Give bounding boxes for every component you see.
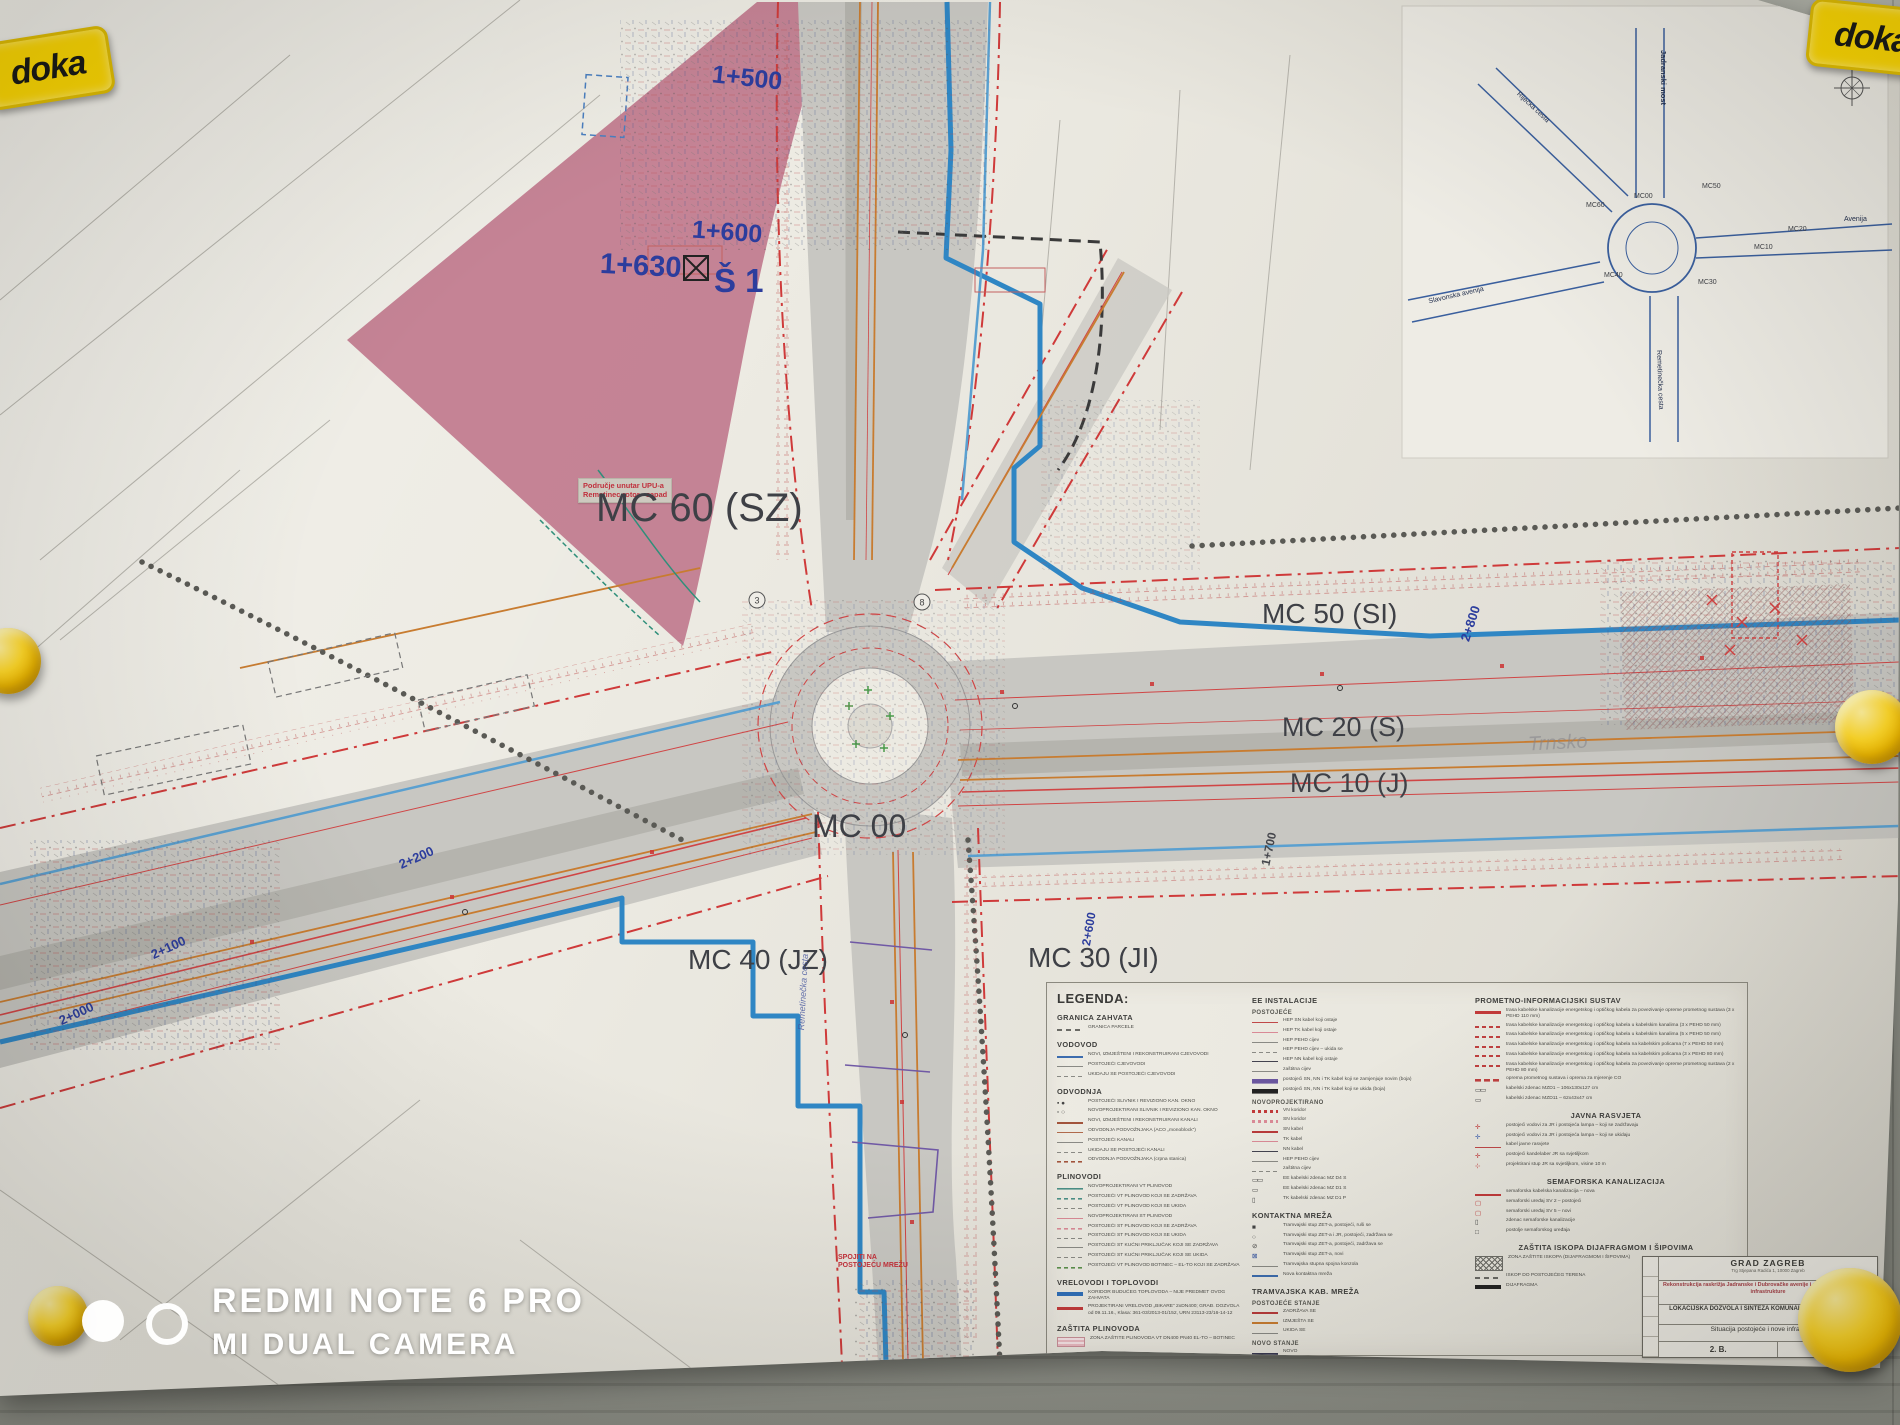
- legend-item: VN koridor: [1252, 1108, 1462, 1116]
- legend-item: GRANICA PARCELE: [1057, 1025, 1245, 1033]
- legend-item: semaforska kabelska kanalizacija – nova: [1475, 1189, 1737, 1197]
- legend-swatch: [1252, 1128, 1278, 1135]
- legend-swatch: [1057, 1063, 1083, 1070]
- legend-swatch: [1057, 1195, 1083, 1202]
- legend-item: ODVODNJA PODVOŽNJAKA (ACO „monoblock”): [1057, 1128, 1245, 1136]
- legend-swatch: [1252, 1048, 1278, 1055]
- legend-swatch: [1475, 1256, 1503, 1271]
- legend-item: NOVOPROJEKTIRANI SLIVNIK I REVIZIONO KAN…: [1057, 1108, 1245, 1116]
- inset-node-mc50: MC50: [1702, 183, 1721, 190]
- label-mc10: MC 10 (J): [1290, 768, 1409, 799]
- legend-item: trasa kabelske kanalizacije energetskog …: [1475, 1032, 1737, 1040]
- legend-item: POSTOJEĆI ST PLINOVOD KOJI SE ZADRŽAVA: [1057, 1224, 1245, 1232]
- legend-swatch: [1057, 1158, 1083, 1165]
- legend-section: ZAŠTITA PLINOVODA ZONA ZAŠTITE PLINOVODA…: [1057, 1324, 1245, 1347]
- label-ch1630: 1+630: [599, 248, 682, 285]
- legend-swatch: [1475, 1063, 1501, 1070]
- legend-swatch: [1475, 1229, 1501, 1236]
- legend-item: kabelski zdenac MZD11 – 62x43x47 cm: [1475, 1096, 1737, 1104]
- legend-item: NN kabel: [1252, 1147, 1462, 1155]
- legend-swatch: [1252, 1234, 1278, 1241]
- legend-item: Nova kontaktna mreža: [1252, 1272, 1462, 1280]
- legend-item: oprema prometnog sustava i oprema za mje…: [1475, 1076, 1737, 1084]
- legend-swatch: [1475, 1210, 1501, 1217]
- legend-item: Tramvajska stupna spojna konzola: [1252, 1262, 1462, 1270]
- legend-col-3: PROMETNO-INFORMACIJSKI SUSTAV trasa kabe…: [1475, 989, 1737, 1293]
- magnet-right: [1835, 690, 1900, 764]
- legend-swatch: [1057, 1100, 1083, 1107]
- legend-swatch: [1475, 1097, 1501, 1104]
- legend-swatch: [1252, 1058, 1278, 1065]
- legend-item: trasa kabelske kanalizacije energetskog …: [1475, 1042, 1737, 1050]
- legend-swatch: [1252, 1177, 1278, 1184]
- plan-paper: 3 8: [0, 0, 1900, 1425]
- legend-swatch: [1475, 1143, 1501, 1150]
- legend-item: POSTOJEĆI ST KUĆNI PRIKLJUČAK KOJI SE ZA…: [1057, 1243, 1245, 1251]
- inset-node-mc60: MC60: [1586, 202, 1605, 209]
- legend-swatch: [1057, 1205, 1083, 1212]
- legend-item: POSTOJEĆI CJEVOVODI: [1057, 1062, 1245, 1070]
- legend-swatch: [1057, 1215, 1083, 1222]
- legend-swatch: [1057, 1073, 1083, 1080]
- legend-item: HEP PEHD cijev – ukida se: [1252, 1047, 1462, 1055]
- doka-logo-text: doka: [8, 43, 89, 93]
- legend-item: POSTOJEĆI ST PLINOVOD KOJI SE UKIDA: [1057, 1233, 1245, 1241]
- legend-item: Tramvajski stup ZET-a, novi: [1252, 1252, 1462, 1260]
- legend-swatch: [1252, 1224, 1278, 1231]
- legend-item: HEP PEHD cijev: [1252, 1157, 1462, 1165]
- legend-swatch: [1252, 1019, 1278, 1026]
- legend-item: trasa kabelske kanalizacije energetskog …: [1475, 1023, 1737, 1031]
- legend-item: POSTOJEĆA DTK (napušta se) – 24xPVCØ110 …: [1057, 1419, 1245, 1425]
- legend-item: EE kabelski zdenac MZ D4 S: [1252, 1176, 1462, 1184]
- legend-section: ODVODNJA POSTOJEĆI SLIVNIK I REVIZIONO K…: [1057, 1087, 1245, 1166]
- project-block-3: [228, 442, 468, 449]
- legend-swatch: [1252, 1148, 1278, 1155]
- legend-item: HEP TK kabel koji ostaje: [1252, 1028, 1462, 1036]
- legend-item: TK kabel: [1252, 1137, 1462, 1145]
- doka-logo-text: doka: [1832, 15, 1900, 62]
- legend-item: SN kabel: [1252, 1127, 1462, 1135]
- camera-circle-ring-icon: [146, 1303, 188, 1345]
- legend-swatch: [1252, 1197, 1278, 1204]
- legend-swatch: [1252, 1088, 1278, 1095]
- legend-item: NOVI, IZMJEŠTENI I REKONSTRUIRANI CJEVOV…: [1057, 1052, 1245, 1060]
- legend-swatch: [1252, 1329, 1278, 1336]
- legend-item: UKIDA SE: [1252, 1328, 1462, 1336]
- paper-wrap: 3 8: [0, 0, 1900, 1425]
- legend-swatch: [1057, 1382, 1083, 1389]
- legend-swatch: [1252, 1138, 1278, 1145]
- legend-swatch: [1252, 1360, 1278, 1367]
- title-block-org: GRAD ZAGREB: [1661, 1258, 1875, 1268]
- legend-item: postojeći SN, NN i TK kabel koji se ukid…: [1252, 1087, 1462, 1095]
- title-block-mini-cells: [1643, 1257, 1659, 1357]
- legend-swatch: [1252, 1078, 1278, 1085]
- legend-swatch: [1057, 1185, 1083, 1192]
- legend-item: zaštitna cijev: [1252, 1166, 1462, 1174]
- legend-swatch: [1475, 1087, 1501, 1094]
- inset-key-map: [1402, 6, 1892, 458]
- legend-swatch: [1252, 1167, 1278, 1174]
- legend-item: postojeći SN, NN i TK kabel koji se zamj…: [1252, 1077, 1462, 1085]
- legend-swatch: [1475, 1053, 1501, 1060]
- camera-circle-solid-icon: [82, 1300, 124, 1342]
- legend-swatch: [1252, 1158, 1278, 1165]
- inset-node-mc20: MC20: [1788, 226, 1807, 233]
- label-district: Trnsko: [1527, 730, 1588, 756]
- legend-swatch: [1252, 1118, 1278, 1125]
- legend-item: UKIDAJU SE POSTOJEĆI KANALI: [1057, 1148, 1245, 1156]
- watermark-line1: REDMI NOTE 6 PRO: [212, 1282, 585, 1321]
- legend-swatch: [1057, 1119, 1083, 1126]
- legend-item: HEP NN kabel koji ostaje: [1252, 1057, 1462, 1065]
- legend-swatch: [1475, 1219, 1501, 1226]
- legend-item: ODVODNJA PODVOŽNJAKA (crpna stanica): [1057, 1157, 1245, 1165]
- legend-item: NOVO: [1252, 1349, 1462, 1357]
- legend-swatch: [1057, 1411, 1083, 1418]
- doka-logo-right: doka: [1805, 0, 1900, 79]
- legend-item: SN koridor: [1252, 1117, 1462, 1125]
- legend-item: POSTOJEĆA DTK (zaštićuje se) – 24xPVCØ11…: [1057, 1381, 1245, 1394]
- legend-swatch: [1475, 1077, 1501, 1084]
- legend-swatch: [1252, 1310, 1278, 1317]
- legend-swatch: [1475, 1274, 1501, 1281]
- legend-item: KORIDOR BUDUĆEG TOPLOVODA – NIJE PREDMET…: [1057, 1290, 1245, 1303]
- legend-item: EE kabelski zdenac MZ D1 S: [1252, 1186, 1462, 1194]
- inset-node-mc10: MC10: [1754, 244, 1773, 251]
- legend-item: NOVOPROJEKTIRANI VT PLINOVOD: [1057, 1184, 1245, 1192]
- legend-swatch: [1057, 1337, 1085, 1347]
- legend-item: HEP SN kabel koji ostaje: [1252, 1018, 1462, 1026]
- legend-swatch: [1057, 1291, 1083, 1298]
- legend-item: trasa kabelske kanalizacije energetskog …: [1475, 1008, 1737, 1021]
- label-mc20: MC 20 (S): [1282, 712, 1405, 743]
- legend-section: JAVNA RASVJETA postojeći vodovi za JR i …: [1475, 1111, 1737, 1170]
- legend-item: POSTOJEĆI TK KABEL (ostaje) – prespojnič…: [1057, 1410, 1245, 1418]
- legend-swatch: [1057, 1129, 1083, 1136]
- legend-item: POSTOJEĆE NA NOVOJ PODLOZI: [1252, 1359, 1462, 1367]
- legend-section: DTK I TK NOVA DTK (prema posebnim uvjeti…: [1057, 1354, 1245, 1425]
- legend-swatch: [1057, 1305, 1083, 1312]
- legend-item: PROJEKTIRANI VRELOVOD „BIKARE” 2xDN400; …: [1057, 1304, 1245, 1317]
- legend-section: GRANICA ZAHVATA GRANICA PARCELE: [1057, 1013, 1245, 1033]
- legend-col-2: EE INSTALACIJE POSTOJEĆE HEP SN kabel ko…: [1252, 989, 1462, 1369]
- legend-swatch: [1252, 1273, 1278, 1280]
- legend-item: POSTOJEĆI KANALI: [1057, 1138, 1245, 1146]
- legend-swatch: [1252, 1109, 1278, 1116]
- legend-item: POSTOJEĆI VT PLINOVOD BOTINEC – EL-TO KO…: [1057, 1263, 1245, 1271]
- legend-swatch: [1057, 1244, 1083, 1251]
- legend-section: POSTOJEĆE STANJE ZADRŽAVA SEIZMJEŠTA SEU…: [1252, 1301, 1462, 1337]
- legend-swatch: [1475, 1124, 1501, 1131]
- legend-swatch: [1057, 1420, 1083, 1425]
- label-mc60: MC 60 (SZ): [596, 486, 803, 531]
- legend-section: VODOVOD NOVI, IZMJEŠTENI I REKONSTRUIRAN…: [1057, 1040, 1245, 1080]
- legend-section: NOVOPROJEKTIRANO VN koridorSN koridorSN …: [1252, 1100, 1462, 1204]
- inset-node-mc30: MC30: [1698, 279, 1717, 286]
- legend-item: ZONA ZAŠTITE PLINOVODA VT DN400 PN40 EL-…: [1057, 1336, 1245, 1347]
- legend-item: POSTOJEĆA DTK (ostaje) – PVC i PEHD cije…: [1057, 1395, 1245, 1408]
- legend-swatch: [1252, 1320, 1278, 1327]
- legend-item: ZADRŽAVA SE: [1252, 1309, 1462, 1317]
- legend-item: semaforski uređaj SV 2 – postojeći: [1475, 1199, 1737, 1207]
- label-ch1600: 1+600: [691, 216, 763, 250]
- legend-swatch: [1475, 1024, 1501, 1031]
- legend-section: KONTAKTNA MREŽA Tramvajski stup ZET-a, p…: [1252, 1211, 1462, 1280]
- legend-section: SEMAFORSKA KANALIZACIJA semaforska kabel…: [1475, 1177, 1737, 1236]
- legend-item: NOVI, IZMJEŠTENI I REKONSTRUIRANI KANALI: [1057, 1118, 1245, 1126]
- photo-of-plan: 3 8: [0, 0, 1900, 1425]
- legend-item: semaforski uređaj SV 5 – novi: [1475, 1209, 1737, 1217]
- legend-swatch: [1252, 1039, 1278, 1046]
- legend-swatch: [1057, 1264, 1083, 1271]
- legend-item: trasa kabelske kanalizacije energetskog …: [1475, 1062, 1737, 1075]
- legend-title: LEGENDA:: [1057, 991, 1245, 1006]
- legend-item: postojeći kandelaber JR sa svjetiljkom: [1475, 1152, 1737, 1160]
- legend-swatch: [1475, 1009, 1501, 1016]
- legend-item: POSTOJEĆI SLIVNIK I REVIZIONO KAN. OKNO: [1057, 1099, 1245, 1107]
- label-mc00: MC 00: [812, 808, 906, 845]
- legend-swatch: [1057, 1149, 1083, 1156]
- legend-section: EE INSTALACIJE: [1252, 996, 1462, 1005]
- legend-swatch: [1057, 1139, 1083, 1146]
- legend-item: IZMJEŠTA SE: [1252, 1319, 1462, 1327]
- inset-node-mc00: MC00: [1634, 193, 1653, 200]
- legend-swatch: [1475, 1033, 1501, 1040]
- legend-swatch: [1057, 1254, 1083, 1261]
- label-mc50: MC 50 (SI): [1262, 598, 1397, 630]
- legend-section: VRELOVODI I TOPLOVODI KORIDOR BUDUĆEG TO…: [1057, 1278, 1245, 1317]
- legend-item: TK kabelski zdenac MZ D1 P: [1252, 1196, 1462, 1204]
- svg-text:8: 8: [919, 598, 924, 608]
- inset-label-jadranski-most: Jadranski most: [1659, 50, 1668, 105]
- legend-item: Tramvajski stup ZET-a i JR, postojeći, z…: [1252, 1233, 1462, 1241]
- legend-item: NOVOPROJEKTIRANI ST PLINOVOD: [1057, 1214, 1245, 1222]
- legend-swatch: [1475, 1134, 1501, 1141]
- legend-swatch: [1057, 1234, 1083, 1241]
- legend-swatch: [1475, 1163, 1501, 1170]
- label-s1: Š 1: [714, 262, 764, 300]
- legend-swatch: [1475, 1284, 1501, 1291]
- legend-swatch: [1252, 1187, 1278, 1194]
- legend-item: postojeći vodovi za JR i postojeća lampa…: [1475, 1133, 1737, 1141]
- legend-item: HEP PEHD cijev: [1252, 1038, 1462, 1046]
- legend-item: UKIDAJU SE POSTOJEĆI CJEVOVODI: [1057, 1072, 1245, 1080]
- legend-item: POSTOJEĆI VT PLINOVOD KOJI SE UKIDA: [1057, 1204, 1245, 1212]
- legend-swatch: [1057, 1396, 1083, 1403]
- legend-item: trasa kabelske kanalizacije energetskog …: [1475, 1052, 1737, 1060]
- legend-item: NOVA DTK (prema posebnim uvjetima ZGS) –…: [1057, 1366, 1245, 1379]
- legend-item: POSTOJEĆI ST KUĆNI PRIKLJUČAK KOJI SE UK…: [1057, 1253, 1245, 1261]
- legend-swatch: [1252, 1243, 1278, 1250]
- legend-section: TRAMVAJSKA KAB. MREŽA: [1252, 1287, 1462, 1296]
- watermark-line2: MI DUAL CAMERA: [212, 1328, 518, 1362]
- legend-item: Tramvajski stup ZET-a, postojeći, zadrža…: [1252, 1242, 1462, 1250]
- legend-swatch: [1475, 1153, 1501, 1160]
- legend-section: PLINOVODI NOVOPROJEKTIRANI VT PLINOVODPO…: [1057, 1172, 1245, 1270]
- legend-swatch: [1252, 1263, 1278, 1270]
- inset-node-mc40: MC40: [1604, 272, 1623, 279]
- legend-swatch: [1252, 1068, 1278, 1075]
- label-spojiti: SPOJITI NA POSTOJEĆU MREŽU: [838, 1254, 908, 1271]
- legend-swatch: [1475, 1190, 1501, 1197]
- legend-swatch: [1252, 1350, 1278, 1357]
- legend-swatch: [1252, 1029, 1278, 1036]
- legend-swatch: [1057, 1367, 1083, 1374]
- legend-item: kabel javne rasvjete: [1475, 1142, 1737, 1150]
- title-block-number: 2. B.: [1659, 1342, 1778, 1357]
- legend-item: POSTOJEĆI VT PLINOVOD KOJI SE ZADRŽAVA: [1057, 1194, 1245, 1202]
- legend-section: NOVO STANJE NOVOPOSTOJEĆE NA NOVOJ PODLO…: [1252, 1341, 1462, 1367]
- inset-label-avenija: Avenija: [1844, 216, 1867, 223]
- legend-item: kabelski zdenac MZD1 – 106x130x127 cm: [1475, 1086, 1737, 1094]
- legend-item: postolje semaforskog uređaja: [1475, 1228, 1737, 1236]
- camera-watermark: REDMI NOTE 6 PRO MI DUAL CAMERA: [0, 1270, 640, 1390]
- legend-col-1: LEGENDA: GRANICA ZAHVATA GRANICA PARCELE…: [1057, 989, 1245, 1425]
- legend-swatch: [1475, 1043, 1501, 1050]
- legend-swatch: [1057, 1053, 1083, 1060]
- legend-swatch: [1057, 1225, 1083, 1232]
- legend-swatch: [1252, 1253, 1278, 1260]
- legend-swatch: [1057, 1109, 1083, 1116]
- legend-item: postojeći vodovi za JR i postojeća lampa…: [1475, 1123, 1737, 1131]
- label-mc30: MC 30 (JI): [1028, 942, 1159, 974]
- legend-section: PROMETNO-INFORMACIJSKI SUSTAV trasa kabe…: [1475, 996, 1737, 1104]
- legend-item: zdenac semaforske kanalizacije: [1475, 1218, 1737, 1226]
- svg-text:3: 3: [754, 596, 759, 606]
- legend-item: projektirani stup JR sa svjetiljkom, vis…: [1475, 1162, 1737, 1170]
- legend-section: POSTOJEĆE HEP SN kabel koji ostajeHEP TK…: [1252, 1010, 1462, 1095]
- magnet-bottom-right: [1798, 1268, 1900, 1372]
- diaphragm-hatch-zone: [1620, 584, 1855, 730]
- legend-swatch: [1475, 1200, 1501, 1207]
- legend-item: Tramvajski stup ZET-a, postojeći, ruši s…: [1252, 1223, 1462, 1231]
- project-block-1: [478, 104, 718, 111]
- legend-item: zaštitna cijev: [1252, 1067, 1462, 1075]
- legend-swatch: [1057, 1026, 1083, 1033]
